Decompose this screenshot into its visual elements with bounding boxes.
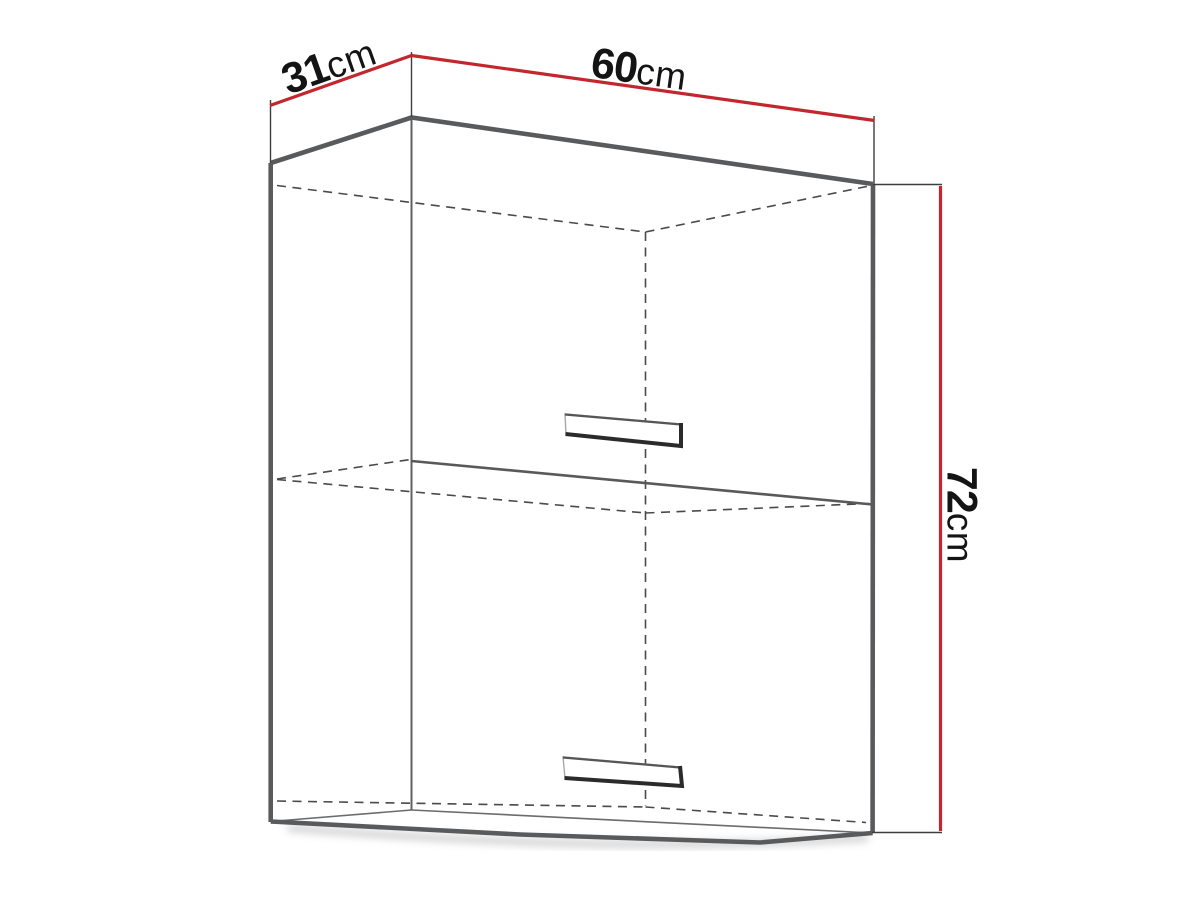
hidden-edges: [277, 186, 869, 823]
lower-door-handle: [563, 757, 682, 786]
cabinet-shadow: [288, 198, 878, 844]
upper-door-handle: [565, 414, 681, 446]
hidden-top-right-edge: [646, 186, 870, 232]
width-value: 60: [588, 39, 640, 93]
shelf-hidden-right-edge: [646, 504, 870, 514]
shelf-hidden-left-edge: [277, 460, 411, 480]
shelf-hidden-back-edge: [277, 480, 646, 514]
height-label: 72cm: [940, 467, 983, 563]
bottom-thin-edges: [271, 810, 873, 833]
cabinet-top-edge: [271, 118, 873, 185]
cabinet-outline: [271, 118, 873, 843]
front-bottom-edge: [412, 810, 873, 833]
cabinet-drawing: [0, 0, 1200, 899]
hidden-top-back-edge: [277, 186, 646, 233]
extension-lines: [271, 52, 943, 833]
width-unit: cm: [634, 50, 690, 98]
hidden-bottom-back-edge: [277, 801, 646, 807]
cabinet-dimension-diagram: 31cm 60cm 72cm: [0, 0, 1200, 899]
hidden-bottom-right-edge: [646, 807, 867, 823]
height-unit: cm: [940, 513, 981, 563]
dimension-lines: [270, 56, 941, 832]
height-value: 72: [938, 467, 986, 513]
side-bottom-edge: [271, 810, 412, 822]
